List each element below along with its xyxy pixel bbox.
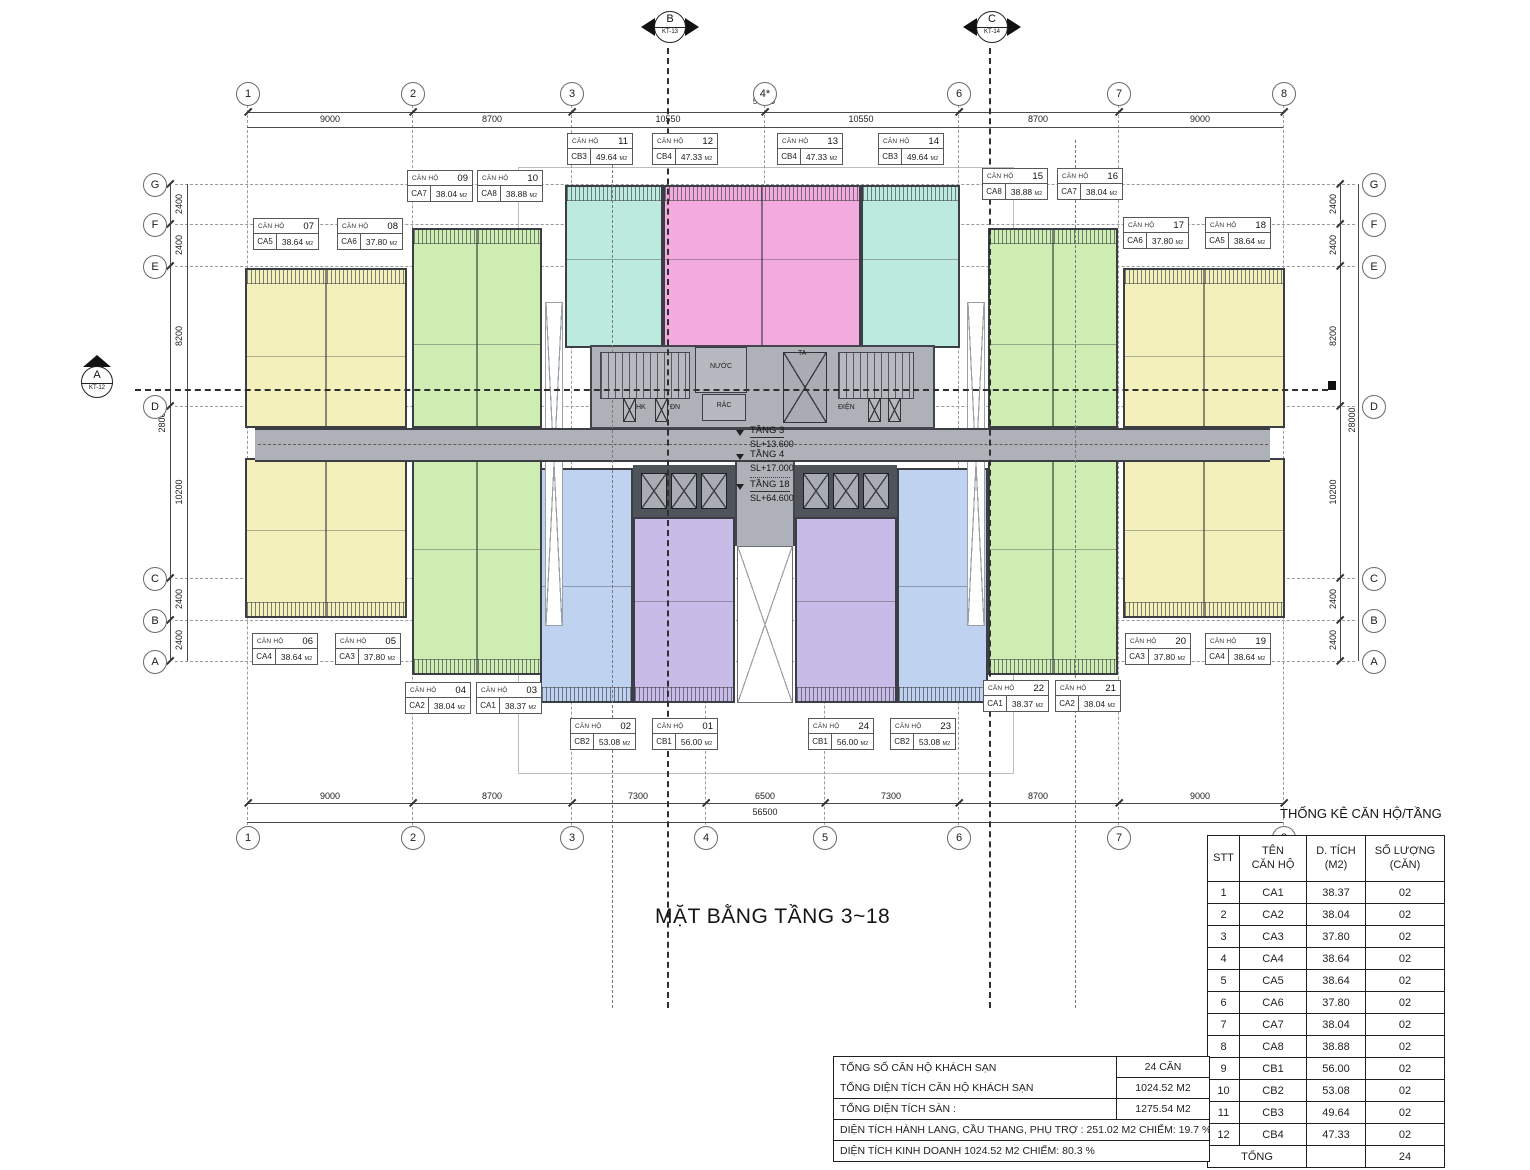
- summary-table: TỔNG SỐ CĂN HỘ KHÁCH SẠN 24 CĂN TỔNG DIỆ…: [833, 1056, 1210, 1162]
- drawing-title: MẶT BẰNG TẦNG 3~18: [655, 905, 890, 929]
- apartment-label-03: CĂN HỘ03CA138.37 M2: [476, 682, 542, 714]
- elevator-cell: [833, 473, 859, 509]
- table-row: 10CB253.0802: [1208, 1080, 1445, 1102]
- grid-bubble-top-2: 2: [401, 82, 425, 106]
- section-line-b: [667, 48, 669, 1008]
- apartment-label-18: CĂN HỘ18CA538.64 M2: [1205, 217, 1271, 249]
- central-light-well: [737, 546, 793, 703]
- grid-bubble-bottom-4: 4: [694, 826, 718, 850]
- apartment-label-16: CĂN HỘ16CA738.04 M2: [1057, 168, 1123, 200]
- elevator-cell: [803, 473, 829, 509]
- grid-bubble-bottom-3: 3: [560, 826, 584, 850]
- section-line-a-end-mark: [1328, 381, 1336, 390]
- elevator-cell: [641, 473, 667, 509]
- apartment-label-02: CĂN HỘ02CB253.08 M2: [570, 718, 636, 750]
- elevator-cell: [863, 473, 889, 509]
- level-3-elevation: SL+13.600: [750, 439, 794, 449]
- core-lower-spine: [735, 462, 795, 546]
- apartment-label-05: CĂN HỘ05CA337.80 M2: [335, 633, 401, 665]
- apartment-label-01: CĂN HỘ01CB156.00 M2: [652, 718, 718, 750]
- grid-bubble-top-7: 7: [1107, 82, 1131, 106]
- section-marker-a-ref: KT-12: [81, 385, 113, 391]
- apartment-label-08: CĂN HỘ08CA637.80 M2: [337, 218, 403, 250]
- level-marker-icon: [736, 484, 744, 490]
- grid-bubble-right-f: F: [1362, 213, 1386, 237]
- grid-bubble-left-a: A: [143, 650, 167, 674]
- apartment-label-22: CĂN HỘ22CA138.37 M2: [983, 680, 1049, 712]
- unit-block-cyan-upper-right: [861, 185, 960, 348]
- electrical-room-label: ĐIỆN: [838, 404, 855, 411]
- dim-right-2: 2400: [1327, 215, 1339, 275]
- unit-block-purple-lower-right: [795, 517, 897, 703]
- apartment-label-15: CĂN HỘ15CA838.88 M2: [982, 168, 1048, 200]
- grid-line-col-7: [1118, 105, 1119, 840]
- apartment-label-21: CĂN HỘ21CA238.04 M2: [1055, 680, 1121, 712]
- unit-block-purple-lower-left: [633, 517, 735, 703]
- unit-block-pink-center: [663, 185, 861, 348]
- unit-block-green-upper-right: [988, 228, 1118, 428]
- dim-right-4: 10200: [1327, 462, 1339, 522]
- table-row: 2CA238.0402: [1208, 904, 1445, 926]
- light-well-right: [967, 302, 985, 626]
- grid-bubble-left-b: B: [143, 609, 167, 633]
- table-row: 8CA838.8802: [1208, 1036, 1445, 1058]
- table-row: 6CA637.8002: [1208, 992, 1445, 1014]
- hk-room-label: HK: [636, 404, 646, 411]
- grid-bubble-right-g: G: [1362, 173, 1386, 197]
- stair-right: [838, 352, 914, 399]
- dim-line-top-2: [247, 127, 1283, 128]
- dn-room-label: ĐN: [670, 404, 680, 411]
- section-marker-b: B KT-13: [654, 11, 686, 43]
- unit-block-yellow-lower-left: [245, 458, 407, 618]
- table-row: 3CA337.8002: [1208, 926, 1445, 948]
- apartment-label-04: CĂN HỘ04CA238.04 M2: [405, 682, 471, 714]
- shaft-box-3: [868, 398, 881, 422]
- stats-total-row: TỔNG24: [1208, 1146, 1445, 1168]
- grid-bubble-bottom-7: 7: [1107, 826, 1131, 850]
- level-4-name: TẦNG 4: [750, 449, 784, 462]
- dim-right-total: 28000: [1346, 390, 1358, 450]
- dim-bottom-7: 9000: [1190, 791, 1210, 801]
- table-row: 4CA438.6402: [1208, 948, 1445, 970]
- apartment-label-10: CĂN HỘ10CA838.88 M2: [477, 170, 543, 202]
- unit-block-green-lower-left: [412, 458, 542, 675]
- apartment-label-14: CĂN HỘ14CB349.64 M2: [878, 133, 944, 165]
- apartment-label-07: CĂN HỘ07CA538.64 M2: [253, 218, 319, 250]
- section-arrow-icon: [1007, 18, 1021, 36]
- level-18-elevation: SL+64.600: [750, 493, 794, 503]
- dim-bottom-2: 8700: [482, 791, 502, 801]
- grid-bubble-right-a: A: [1362, 650, 1386, 674]
- section-arrow-icon: [963, 18, 977, 36]
- apartment-label-12: CĂN HỘ12CB447.33 M2: [652, 133, 718, 165]
- grid-bubble-bottom-5: 5: [813, 826, 837, 850]
- elevator-cell: [701, 473, 727, 509]
- dim-right-6: 2400: [1327, 610, 1339, 670]
- grid-bubble-left-e: E: [143, 255, 167, 279]
- apartment-label-20: CĂN HỘ20CA337.80 M2: [1125, 633, 1191, 665]
- dim-top-2: 8700: [482, 114, 502, 124]
- section-arrow-icon: [641, 18, 655, 36]
- level-marker-icon: [736, 430, 744, 436]
- table-row: 9CB156.0002: [1208, 1058, 1445, 1080]
- shaft-box-4: [888, 398, 901, 422]
- summary-row-5: DIỆN TÍCH KINH DOANH 1024.52 M2 CHIẾM: 8…: [834, 1141, 1209, 1161]
- grid-bubble-bottom-1: 1: [236, 826, 260, 850]
- level-18-name: TẦNG 18: [750, 479, 790, 492]
- table-row: 11CB349.6402: [1208, 1102, 1445, 1124]
- summary-row-1: TỔNG SỐ CĂN HỘ KHÁCH SẠN 24 CĂN: [834, 1057, 1209, 1078]
- unit-block-yellow-upper-left: [245, 268, 407, 428]
- grid-bubble-top-4s: 4*: [753, 82, 777, 106]
- summary-row-2: TỔNG DIỆN TÍCH CĂN HỘ KHÁCH SẠN 1024.52 …: [834, 1078, 1209, 1099]
- ta-room-label: TA: [798, 350, 806, 357]
- grid-bubble-top-3: 3: [560, 82, 584, 106]
- dim-line-right-1: [1340, 184, 1341, 661]
- dim-right-3: 8200: [1327, 306, 1339, 366]
- dim-top-1: 9000: [320, 114, 340, 124]
- dim-line-bottom-2: [247, 822, 1283, 823]
- grid-bubble-right-c: C: [1362, 567, 1386, 591]
- level-4-elevation: SL+17.000: [750, 463, 794, 473]
- section-boundary-left: [612, 140, 613, 1008]
- dim-left-2: 2400: [173, 215, 185, 275]
- dim-left-3: 8200: [173, 306, 185, 366]
- apartment-label-19: CĂN HỘ19CA438.64 M2: [1205, 633, 1271, 665]
- unit-block-green-upper-left: [412, 228, 542, 428]
- shaft-box-1: [623, 398, 636, 422]
- stats-header-area: D. TÍCH(M2): [1307, 836, 1366, 882]
- grid-bubble-left-g: G: [143, 173, 167, 197]
- trash-room-label: RÁC: [708, 402, 740, 409]
- unit-block-green-lower-right: [988, 458, 1118, 675]
- stats-table-heading: THỐNG KÊ CĂN HỘ/TẦNG: [1280, 806, 1442, 821]
- section-arrow-icon: [685, 18, 699, 36]
- section-marker-a: A KT-12: [81, 366, 113, 398]
- section-marker-a-label: A: [81, 369, 113, 381]
- grid-bubble-right-d: D: [1362, 395, 1386, 419]
- apartment-label-09: CĂN HỘ09CA738.04 M2: [407, 170, 473, 202]
- apartment-label-17: CĂN HỘ17CA637.80 M2: [1123, 217, 1189, 249]
- dim-line-left-2: [187, 184, 188, 661]
- grid-bubble-right-e: E: [1362, 255, 1386, 279]
- section-line-a: [135, 389, 1328, 391]
- dim-top-5: 8700: [1028, 114, 1048, 124]
- level-3-name: TẦNG 3: [750, 425, 784, 438]
- dim-bottom-1: 9000: [320, 791, 340, 801]
- unit-block-cyan-upper-left: [565, 185, 663, 348]
- grid-bubble-left-f: F: [143, 213, 167, 237]
- water-room: [695, 347, 747, 393]
- dim-top-6: 9000: [1190, 114, 1210, 124]
- level-marker-icon: [736, 454, 744, 460]
- summary-row-4: DIỆN TÍCH HÀNH LANG, CẦU THANG, PHỤ TRỢ …: [834, 1120, 1209, 1141]
- light-well-left: [545, 302, 563, 626]
- apartment-label-06: CĂN HỘ06CA438.64 M2: [252, 633, 318, 665]
- grid-bubble-top-1: 1: [236, 82, 260, 106]
- unit-block-yellow-upper-right: [1123, 268, 1285, 428]
- grid-bubble-left-c: C: [143, 567, 167, 591]
- summary-row-3: TỔNG DIỆN TÍCH SÀN : 1275.54 M2: [834, 1099, 1209, 1120]
- elevator-cell: [671, 473, 697, 509]
- stats-header-qty: SỐ LƯỢNG(CĂN): [1366, 836, 1445, 882]
- unit-block-yellow-lower-right: [1123, 458, 1285, 618]
- dim-bottom-4: 6500: [755, 791, 775, 801]
- stats-header-stt: STT: [1208, 836, 1240, 882]
- dim-bottom-total: 56500: [752, 807, 777, 817]
- section-marker-c-label: C: [976, 13, 1008, 25]
- dim-bottom-3: 7300: [628, 791, 648, 801]
- table-row: 12CB447.3302: [1208, 1124, 1445, 1146]
- elevator-upper: [783, 352, 827, 423]
- dim-line-right-2: [1358, 184, 1359, 661]
- dim-left-4: 10200: [173, 462, 185, 522]
- grid-bubble-top-8: 8: [1272, 82, 1296, 106]
- section-boundary-right: [1075, 140, 1076, 1008]
- floor-plan-sheet: { "title": "MẶT BẰNG TẦNG 3~18", "sectio…: [0, 0, 1530, 1170]
- table-row: 1CA138.3702: [1208, 882, 1445, 904]
- grid-bubble-top-6: 6: [947, 82, 971, 106]
- apartment-label-23: CĂN HỘ23CB253.08 M2: [890, 718, 956, 750]
- section-marker-c-ref: KT-14: [976, 29, 1008, 35]
- apartment-label-13: CĂN HỘ13CB447.33 M2: [777, 133, 843, 165]
- grid-bubble-bottom-6: 6: [947, 826, 971, 850]
- dim-bottom-5: 7300: [881, 791, 901, 801]
- grid-bubble-left-d: D: [143, 395, 167, 419]
- section-marker-c: C KT-14: [976, 11, 1008, 43]
- grid-bubble-bottom-2: 2: [401, 826, 425, 850]
- apartment-label-11: CĂN HỘ11CB349.64 M2: [567, 133, 633, 165]
- dim-top-4: 10550: [848, 114, 873, 124]
- elevator-bank-left: [633, 465, 735, 517]
- water-room-label: NƯỚC: [703, 363, 739, 370]
- dim-left-6: 2400: [173, 610, 185, 670]
- stats-header-name: TÊNCĂN HỘ: [1240, 836, 1307, 882]
- stats-table: STT TÊNCĂN HỘ D. TÍCH(M2) SỐ LƯỢNG(CĂN) …: [1207, 835, 1445, 1168]
- dim-line-bottom-1: [247, 803, 1283, 804]
- level-separator: [750, 477, 790, 478]
- apartment-label-24: CĂN HỘ24CB156.00 M2: [808, 718, 874, 750]
- dim-bottom-6: 8700: [1028, 791, 1048, 801]
- section-marker-b-ref: KT-13: [654, 29, 686, 35]
- table-row: 7CA738.0402: [1208, 1014, 1445, 1036]
- grid-bubble-right-b: B: [1362, 609, 1386, 633]
- table-row: 5CA538.6402: [1208, 970, 1445, 992]
- dim-line-left-1: [170, 184, 171, 661]
- stair-left: [600, 352, 690, 399]
- section-marker-b-label: B: [654, 13, 686, 25]
- elevator-bank-right: [795, 465, 897, 517]
